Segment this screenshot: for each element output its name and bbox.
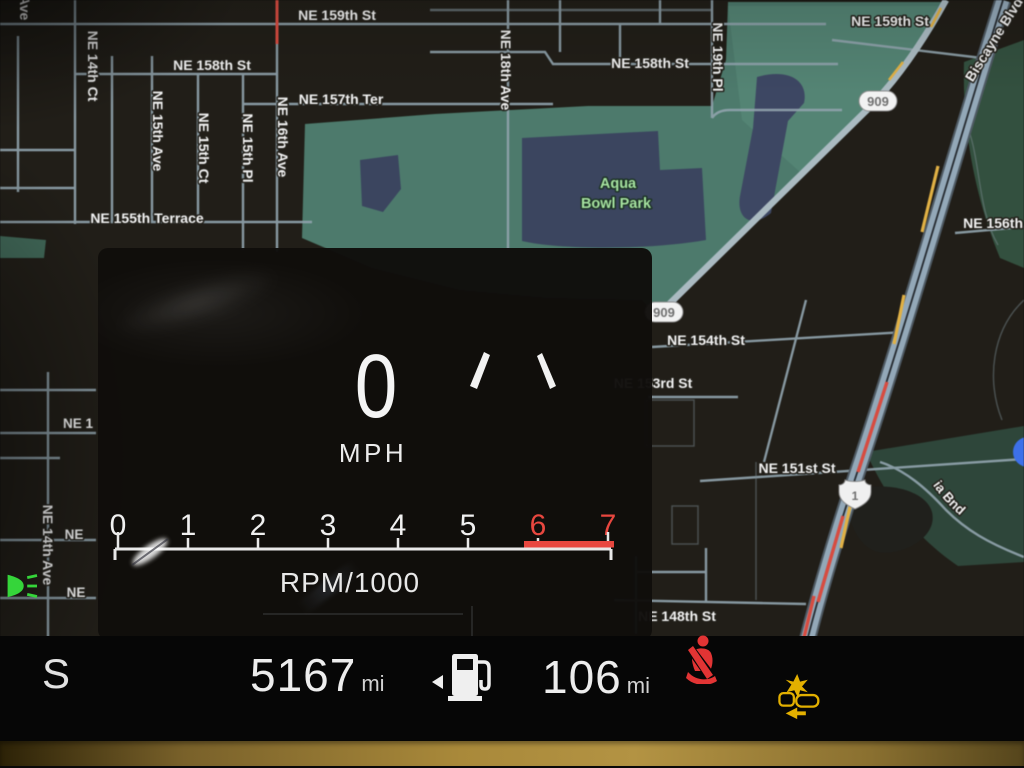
street-label: NE 15th Pl [240,113,256,182]
tach-tick-label: 4 [390,509,407,542]
tachometer: 0 1 2 3 4 5 6 7 RPM/1000 [98,488,652,640]
tach-tick-label: 1 [180,509,197,542]
gauge-panel: 0 MPH 0 1 2 3 4 5 6 7 [98,248,652,640]
street-label: NE 159th St [851,13,929,29]
street-label: NE 157th Ter [299,91,384,107]
tach-redline-bar [524,541,614,548]
street-label: NE 158th St [173,57,251,73]
street-label: NE 1 [63,416,94,431]
street-label: NE 156th St [963,215,1024,231]
street-label: NE 16th Ave [275,97,291,178]
gear-indicator: S [42,650,70,698]
instrument-cluster-screen: NE 159th St NE 159th St NE 158th St NE 1… [0,0,1024,768]
fuel-range-unit: mi [627,673,650,699]
speed-value: 0 [334,342,419,432]
route-shield-909-second-label: 909 [653,305,675,320]
street-label: NE [67,585,86,600]
street-label: NE 155th Terrace [90,210,204,226]
forward-collision-alert-icon [778,672,826,722]
tach-needle [128,534,171,570]
tach-unit-label: RPM/1000 [280,567,420,598]
street-label: NE 15th Ct [196,113,212,184]
tach-tick-label-redline: 6 [530,509,547,542]
tach-tick-label: 2 [250,509,267,542]
fuel-range-value: 106 [542,650,622,704]
odometer-value: 5167 [250,648,356,702]
street-label: NE 14th Ct [85,31,101,102]
street-label: NE 14th Ave [40,505,56,586]
lane-keep-assist-icon [464,348,564,392]
route-shield-909-label: 909 [867,94,889,109]
fuel-door-arrow-left-icon [432,675,443,689]
fuel-pump-icon [428,650,494,702]
street-label: NE 158th St [611,55,689,71]
map-showthrough-line [263,606,472,636]
street-label: NE 151st St [758,460,835,476]
tach-tick-label: 5 [460,509,477,542]
street-label: NE 14th Ave [17,0,33,21]
odometer-unit: mi [361,671,384,697]
route-shield-us1-label: 1 [852,489,859,503]
tach-tick-label: 3 [320,509,337,542]
street-label: NE 15th Ave [150,91,166,172]
speed-unit-label: MPH [313,438,433,469]
street-label: NE 154th St [667,332,745,348]
status-bar [0,636,1024,741]
tach-scale-line [115,549,611,560]
park-label-line1: Aqua [600,176,637,192]
fuel-range: 106 mi [542,650,650,704]
park-label-line2: Bowl Park [581,196,652,212]
odometer: 5167 mi [250,648,385,702]
street-label: NE [65,527,84,542]
dashboard-trim [0,741,1024,766]
street-label: NE 19th Pl [710,22,726,91]
low-beam-headlight-icon [0,572,40,600]
seatbelt-warning-icon [684,634,720,684]
street-label: NE 159th St [298,7,376,23]
street-label: NE 18th Ave [498,30,514,111]
